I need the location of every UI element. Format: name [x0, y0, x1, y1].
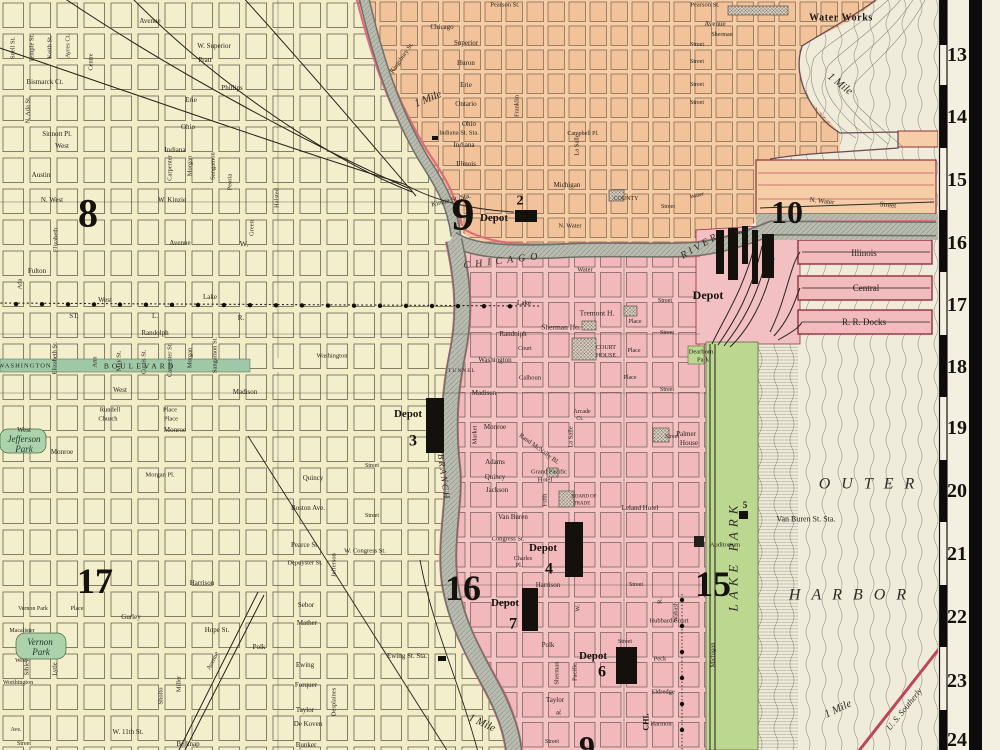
station-dot [352, 303, 356, 307]
station-dot [222, 303, 226, 307]
map-label: Polk [542, 641, 555, 649]
map-label: Pacific [572, 663, 579, 681]
map-label: Street [660, 330, 674, 336]
map-label: Street [665, 434, 679, 440]
map-label: Carpenter St. [167, 342, 174, 377]
map-label: R. R. Docks [842, 317, 887, 327]
map-label: Avenue [169, 239, 190, 247]
station-dot [196, 303, 200, 307]
map-label: Randolph [141, 329, 169, 337]
map-label: Phillips [221, 84, 243, 92]
map-label: N. Ada St. [25, 96, 32, 123]
map-label: Harrison [190, 579, 215, 587]
court-house-building [572, 338, 596, 360]
map-label: Elizabeth St. [52, 341, 59, 375]
map-label: House [680, 439, 698, 447]
map-label: Michigan [710, 642, 717, 668]
depot-7-building [522, 588, 538, 631]
map-label: 9 [579, 729, 595, 750]
map-label: Jackson [486, 486, 509, 494]
map-label: Depot [491, 597, 519, 609]
map-label: Pratt [198, 56, 211, 64]
map-label: W. [575, 604, 582, 612]
map-label: Lytle [52, 662, 59, 675]
map-label: Morgan [187, 155, 194, 176]
map-label: N. West [41, 196, 63, 204]
map-label: 4 [545, 561, 553, 578]
map-label: West [55, 142, 69, 150]
map-label: Pearce St. [291, 541, 319, 549]
map-label: L. [152, 312, 158, 320]
station-dot [144, 302, 148, 306]
map-label: Ewing [296, 661, 315, 669]
map-label: Court [518, 346, 532, 352]
map-label: Avenue [139, 17, 160, 25]
map-label: Pl. [516, 563, 523, 569]
map-label: Avenue [704, 20, 725, 28]
map-label: Green [249, 219, 256, 236]
map-label: Madison [472, 389, 497, 397]
auditorium-building [694, 536, 704, 547]
map-label: Street [618, 639, 632, 645]
map-label: Place [163, 407, 177, 414]
map-label: La Salle [568, 426, 575, 448]
map-label: Central [853, 283, 880, 293]
map-label: Illinois [851, 248, 877, 258]
map-label: Depuyster St. [287, 560, 323, 567]
map-label: Street [690, 82, 704, 88]
depot-2-building [515, 210, 537, 222]
map-label: Park [31, 647, 51, 657]
map-label: Mather [297, 619, 318, 627]
map-label: 17 [947, 294, 967, 316]
map-label: W. [240, 240, 249, 249]
map-label: West [98, 296, 112, 304]
map-label: Harmon [650, 721, 672, 728]
map-label: Street [661, 204, 675, 210]
map-label: Gurley [121, 613, 141, 621]
map-label: Water [577, 267, 593, 274]
map-border-bar [969, 0, 982, 750]
map-label: Lake [203, 293, 217, 301]
map-label: Ohio [181, 123, 196, 131]
map-label: Jefferson [331, 552, 338, 576]
map-label: Sibley [24, 658, 31, 675]
station-dot [326, 303, 330, 307]
map-label: Indiana [454, 141, 476, 149]
map-label: Madison [233, 388, 258, 396]
map-label: Pearson St. [690, 2, 720, 9]
map-label: 20 [947, 480, 967, 502]
map-label: Pearson St. [490, 2, 520, 9]
map-label: Snell St. [10, 37, 17, 59]
map-label: Place [71, 606, 84, 612]
map-label: Centre [88, 53, 95, 70]
map-label: Hubbard Court [649, 618, 688, 625]
map-label: Adams [485, 458, 505, 466]
map-label: Street [879, 200, 896, 210]
map-label: 17 [77, 561, 113, 601]
map-canvas: 13141516171819202122232489101516179Depot… [0, 0, 1000, 750]
map-label: Forquer [295, 681, 318, 689]
map-label: R. [238, 314, 245, 322]
map-label: R. [657, 598, 664, 604]
station-dot [300, 303, 304, 307]
map-label: Street [690, 59, 704, 65]
map-label: Elizabeth [53, 227, 60, 252]
map-label: Depot [394, 408, 422, 420]
map-label: Taylor [546, 696, 565, 704]
map-label: 16 [445, 568, 481, 608]
map-label: CHI. [642, 713, 651, 730]
map-label: Depot [480, 212, 508, 224]
map-label: Austin [32, 171, 51, 179]
map-label: OUTER [819, 476, 926, 493]
map-label: Dearborn [689, 349, 714, 356]
map-label: Worthington [3, 680, 33, 686]
map-label: West [17, 426, 31, 434]
map-label: Quincy [303, 474, 324, 482]
map-label: Street [690, 42, 704, 48]
map-label: Quincy [485, 473, 506, 481]
depot-3-building [426, 398, 444, 453]
map-label: Tremont H. [580, 309, 615, 318]
station-dot [680, 650, 684, 654]
map-label: Wabash [673, 601, 680, 622]
map-label: Peoria [227, 174, 234, 191]
map-label: Grand Pacific [531, 469, 567, 476]
map-label: Polk [253, 643, 266, 651]
map-label: Monroe [164, 426, 186, 434]
map-label: 2 [517, 194, 524, 209]
map-label: Erie [460, 81, 472, 89]
map-label: 5 [743, 500, 748, 510]
station-dot [430, 304, 434, 308]
map-label: Jefferson [8, 434, 41, 444]
map-label: West [113, 386, 127, 394]
map-label: 16 [947, 232, 967, 254]
map-label: Charles [514, 556, 533, 562]
map-label: Indiana [165, 146, 187, 154]
map-label: Park [14, 444, 34, 454]
map-label: Illinois [456, 160, 476, 168]
map-label: Depot [579, 650, 607, 662]
map-label: Michigan [554, 181, 581, 189]
map-label: 24 [947, 729, 967, 750]
map-label: TRADE [574, 502, 591, 507]
station-dot [482, 304, 486, 308]
map-label: Leland Hotel [622, 504, 659, 512]
map-label: Monroe [51, 448, 73, 456]
map-label: Washington [317, 353, 349, 360]
map-label: 22 [947, 606, 967, 628]
map-label: Van Buren [498, 513, 528, 521]
map-label: Place [164, 416, 178, 423]
station-dot [680, 598, 684, 602]
map-label: Superior [454, 39, 479, 47]
map-label: Park [697, 357, 710, 364]
map-label: Sherman [554, 661, 561, 685]
map-label: Lake [517, 299, 531, 307]
map-label: LAKE PARK [726, 501, 741, 613]
station-dot [680, 702, 684, 706]
map-label: Peck [654, 656, 667, 663]
map-label: Street [17, 741, 31, 747]
map-label: Fifth [542, 493, 549, 506]
map-label: Bismarck Ct. [27, 78, 64, 86]
map-label: Place [628, 348, 641, 354]
station-dot [248, 303, 252, 307]
map-label: Street [365, 513, 379, 519]
map-label: La Salle [574, 134, 581, 156]
map-label: Depot [529, 542, 557, 554]
map-label: Ontario [455, 100, 477, 108]
map-label: 14 [947, 106, 967, 128]
map-label: BOARD OF [571, 495, 596, 500]
water-works-building [728, 6, 788, 15]
map-label: Macalister [9, 628, 34, 634]
map-label: Erie [185, 96, 197, 104]
map-label: Depot [693, 288, 724, 302]
map-label: Street [545, 739, 559, 745]
station-dot [92, 302, 96, 306]
map-label: Harrison [536, 581, 561, 589]
map-label: 19 [947, 417, 967, 439]
map-label: W. Superior [197, 42, 231, 50]
map-label: Miller [176, 675, 183, 692]
map-label: Hope St. [205, 626, 230, 634]
map-label: 18 [947, 356, 967, 378]
map-label: Water Works [809, 13, 873, 24]
map-label: Arcade [573, 409, 591, 415]
map-label: Street [690, 100, 704, 106]
map-label: Ohio [462, 120, 477, 128]
station-dot [14, 302, 18, 306]
map-label: W. Kinzie [158, 196, 186, 204]
map-label: May St. [116, 350, 123, 371]
map-label: Palmer [676, 430, 696, 438]
station-dot [404, 304, 408, 308]
map-label: ST. [69, 312, 79, 320]
map-label: R. [556, 709, 563, 715]
map-label: 23 [947, 670, 967, 692]
map-label: Calhoun [519, 375, 542, 382]
map-label: Carpenter [167, 154, 174, 180]
map-label: Sherman Ho. [541, 323, 581, 332]
map-label: HOUSE [596, 353, 616, 359]
station-dot [680, 728, 684, 732]
map-label: Huron [457, 59, 475, 67]
map-label: TUNNEL [448, 368, 476, 374]
map-label: Street [660, 387, 674, 393]
map-label: Washington [478, 356, 512, 364]
station-dot [40, 302, 44, 306]
map-label: Ayres Ct. [65, 33, 72, 58]
station-dot [274, 303, 278, 307]
map-label: Curtis St. [141, 349, 148, 374]
map-label: Congress St. [492, 536, 525, 543]
map-label: Auditorium [710, 542, 740, 549]
map-label: Keith St. [47, 35, 54, 58]
map-label: Hotel [538, 477, 553, 484]
station-dot [66, 302, 70, 306]
station-dot [680, 676, 684, 680]
map-label: Sholto [158, 688, 165, 705]
map-label: Temple St. [29, 34, 36, 62]
map-label: Boston Ave. [291, 504, 325, 512]
map-label: 7 [509, 616, 517, 633]
map-label: Campbell Pl. [567, 131, 599, 137]
map-label: Church [98, 416, 118, 423]
map-label: 3 [409, 433, 417, 450]
map-label: 21 [947, 543, 967, 565]
map-label: Morgan Pl. [145, 472, 175, 479]
station-dot [456, 304, 460, 308]
map-label: 8 [78, 191, 98, 236]
map-label: Ewing St. Sta. [387, 652, 427, 660]
map-label: Sebor [298, 601, 315, 609]
map-label: 15 [947, 169, 967, 191]
map-label: 10 [771, 194, 803, 230]
map-label: Eldredge [651, 689, 675, 696]
map-label: Monroe [484, 423, 506, 431]
map-label: Taylor [296, 706, 315, 714]
map-label: Indiana St. Sta. [439, 130, 479, 137]
station-dot [170, 303, 174, 307]
map-label: N. Water [558, 223, 582, 230]
map-label: Desplaines [331, 687, 338, 716]
map-label: Sangamon [210, 152, 217, 180]
harbor-shore-hachure [758, 345, 798, 750]
map-label: Bunker [296, 741, 317, 749]
map-label: Street [365, 463, 379, 469]
map-label: Halsted [274, 187, 281, 208]
map-label: 6 [598, 664, 606, 681]
map-label: Fulton [28, 267, 47, 275]
depot-6-building [616, 647, 637, 684]
map-label: Ave. [10, 727, 22, 733]
map-label: W. Congress St. [344, 548, 386, 555]
map-label: Vernon Park [18, 606, 48, 612]
map-label: HARBOR [788, 587, 917, 604]
station-dot [508, 304, 512, 308]
map-label: WASHINGTON [0, 363, 52, 370]
map-label: 13 [947, 44, 967, 66]
map-label: Market [472, 425, 479, 444]
map-label: Street [734, 230, 748, 236]
depot-4-building [565, 522, 583, 577]
map-label: W. 11th St. [113, 728, 144, 736]
station-dot [118, 302, 122, 306]
map-label: Place [624, 375, 637, 381]
map-label: Ct. [576, 416, 584, 422]
map-label: De Koven [294, 720, 323, 728]
map-label: Belknap [176, 740, 200, 748]
map-label: Morgan [187, 347, 194, 368]
map-label: Van Buren St. Sta. [777, 515, 836, 524]
map-label: Street [658, 298, 672, 304]
map-label: Franklin [514, 94, 521, 117]
map-label: Sinnott Pl. [42, 130, 72, 138]
map-label: Ada [17, 278, 24, 289]
station-dot [378, 304, 382, 308]
map-label: COUNTY [614, 196, 640, 202]
map-label: Rundell [100, 407, 121, 414]
map-label: Sangamon St. [212, 337, 219, 373]
map-label: Sherman [711, 32, 732, 38]
map-label: Chicago [430, 23, 454, 31]
map-page: 13141516171819202122232489101516179Depot… [0, 0, 1000, 750]
map-label: COURT [596, 345, 616, 351]
map-label: Place [629, 319, 642, 325]
map-label: Street [629, 582, 643, 588]
map-label: Vernon [27, 637, 53, 647]
map-label: Ann [92, 356, 99, 368]
map-label: Randolph [499, 330, 527, 338]
